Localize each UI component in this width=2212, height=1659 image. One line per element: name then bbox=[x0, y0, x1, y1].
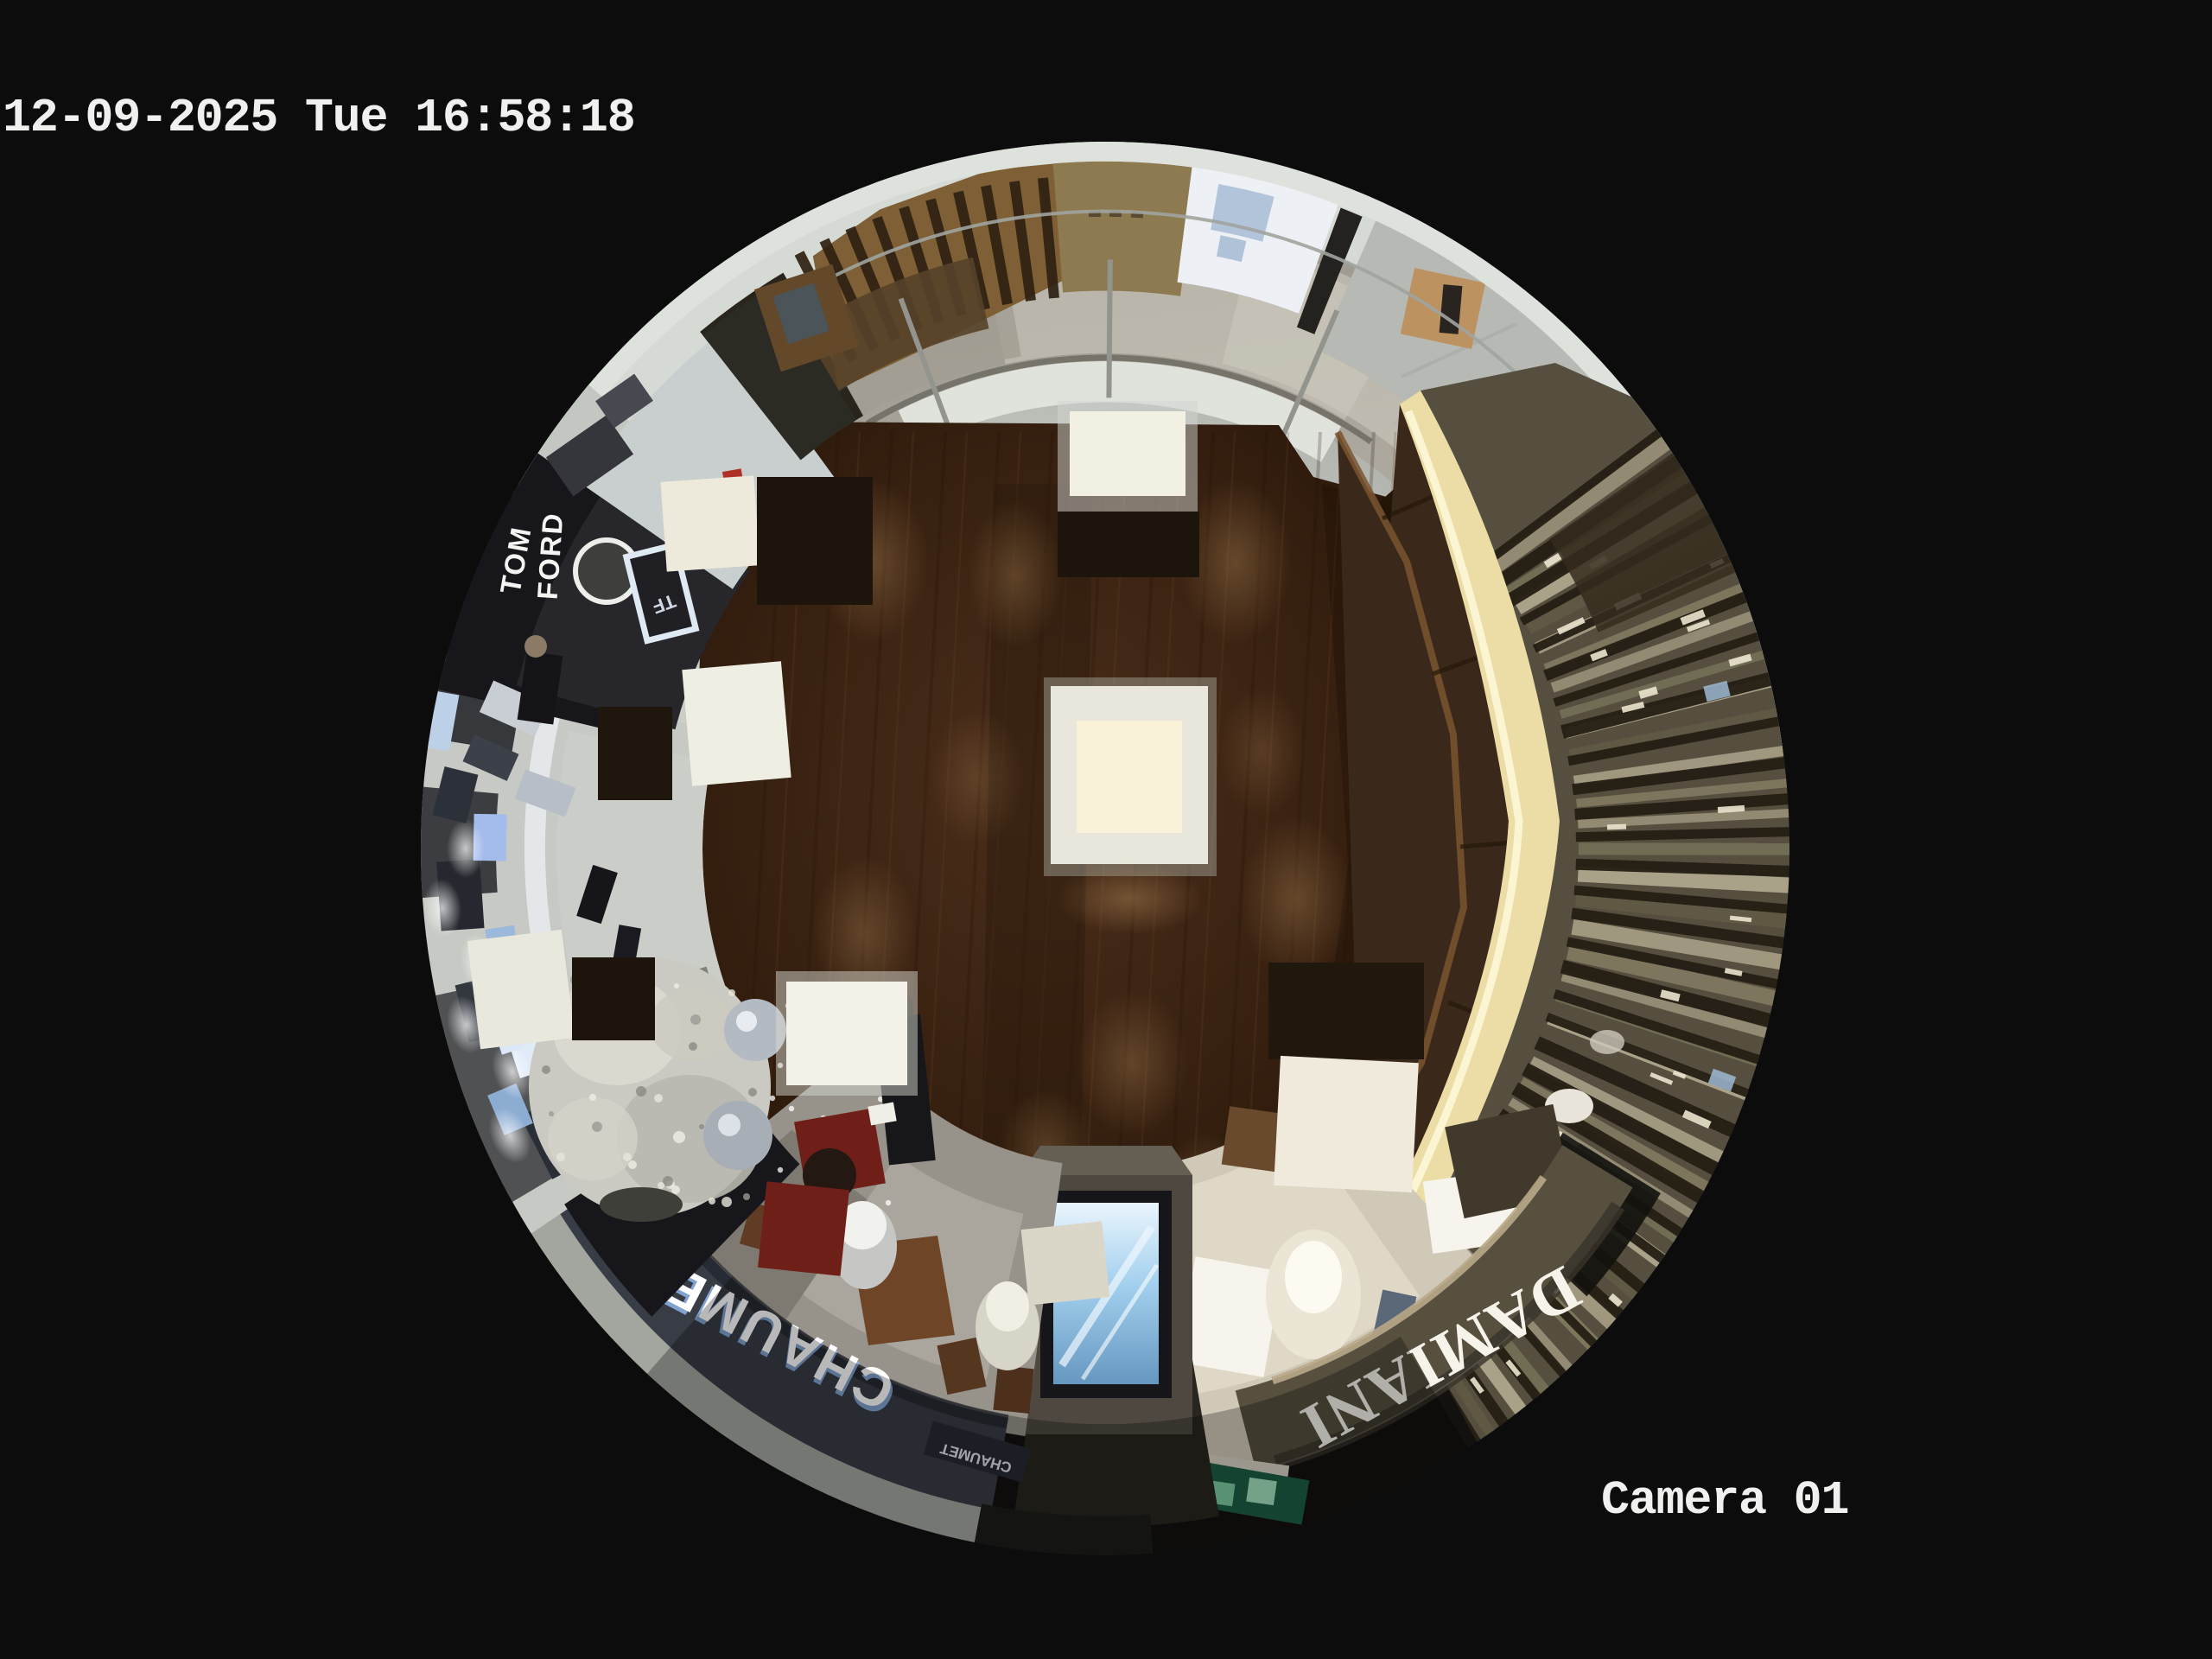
svg-text:12-09-2025 Tue 16:58:18: 12-09-2025 Tue 16:58:18 bbox=[3, 91, 635, 145]
svg-text:FORD: FORD bbox=[531, 511, 569, 601]
svg-text:Camera 01: Camera 01 bbox=[1601, 1473, 1848, 1528]
